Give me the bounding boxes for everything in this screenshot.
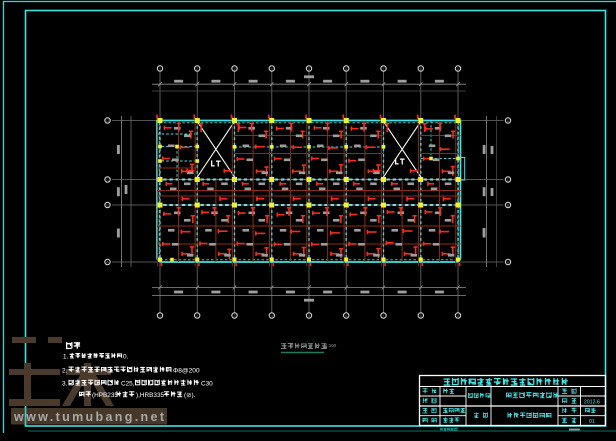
svg-text:4: 4 [271,67,273,71]
svg-text:0.: 0. [123,353,129,360]
svg-text:(HPB235: (HPB235 [92,392,118,399]
svg-text:www.tumubang.net: www.tumubang.net [13,410,165,424]
svg-text:1.: 1. [63,353,69,360]
svg-text:C: C [507,178,510,182]
svg-text:01: 01 [589,419,595,425]
svg-text:2: 2 [196,314,198,318]
svg-text:D: D [106,119,109,123]
svg-text:2.: 2. [62,367,68,374]
svg-text:1: 1 [159,314,161,318]
svg-text:9: 9 [457,67,459,71]
svg-text:),HRB335: ),HRB335 [136,392,165,399]
svg-text:3.: 3. [62,380,68,387]
svg-text:3: 3 [234,314,236,318]
svg-text:C30: C30 [201,380,213,387]
svg-text:5: 5 [308,67,310,71]
svg-text:5: 5 [308,314,310,318]
svg-text:6: 6 [345,67,347,71]
svg-text:2: 2 [196,67,198,71]
svg-text:8: 8 [420,67,422,71]
svg-text:1:100: 1:100 [325,343,337,348]
svg-text:Φ8@200: Φ8@200 [173,367,200,374]
svg-text:2013.6: 2013.6 [584,400,600,406]
svg-text:6: 6 [345,314,347,318]
svg-text:4: 4 [271,314,273,318]
svg-text:D: D [507,119,510,123]
svg-text:3: 3 [234,67,236,71]
svg-text:7: 7 [383,67,385,71]
svg-text:(⊘).: (⊘). [184,392,196,399]
svg-text:C25,: C25, [121,380,135,387]
svg-text:1: 1 [159,67,161,71]
svg-text:7: 7 [383,314,385,318]
svg-text:9: 9 [457,314,459,318]
svg-text:8: 8 [420,314,422,318]
svg-text:C: C [106,178,109,182]
